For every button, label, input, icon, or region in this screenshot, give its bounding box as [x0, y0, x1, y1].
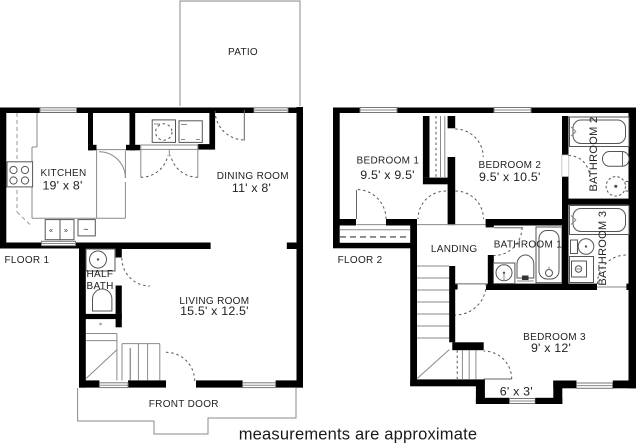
svg-text:BATHROOM 1: BATHROOM 1 [494, 240, 563, 251]
svg-text:9' x 12': 9' x 12' [531, 341, 571, 355]
svg-text:«: « [49, 228, 53, 235]
svg-text:measurements are approximate: measurements are approximate [239, 426, 478, 444]
svg-text:»: » [64, 228, 68, 235]
svg-text:BATH: BATH [87, 281, 114, 292]
svg-text:HALF: HALF [87, 269, 114, 280]
svg-text:FLOOR 1: FLOOR 1 [5, 255, 50, 266]
svg-text:∼: ∼ [83, 227, 89, 234]
svg-text:BATHROOM 3: BATHROOM 3 [597, 211, 609, 286]
svg-text:6' x 3': 6' x 3' [500, 385, 533, 399]
svg-text:BATHROOM 2: BATHROOM 2 [588, 117, 600, 192]
svg-text:BEDROOM 1: BEDROOM 1 [357, 156, 420, 167]
svg-text:9.5' x 9.5': 9.5' x 9.5' [360, 168, 414, 182]
svg-text:LANDING: LANDING [431, 244, 478, 255]
svg-text:KITCHEN: KITCHEN [41, 168, 87, 179]
svg-text:PATIO: PATIO [228, 47, 258, 58]
svg-text:11' x 8': 11' x 8' [232, 181, 271, 195]
svg-text:15.5' x 12.5': 15.5' x 12.5' [180, 304, 249, 318]
svg-text:19' x 8': 19' x 8' [42, 179, 82, 193]
svg-text:FLOOR 2: FLOOR 2 [338, 255, 383, 266]
svg-text:FRONT DOOR: FRONT DOOR [149, 399, 219, 410]
svg-text:9.5' x 10.5': 9.5' x 10.5' [479, 170, 541, 184]
